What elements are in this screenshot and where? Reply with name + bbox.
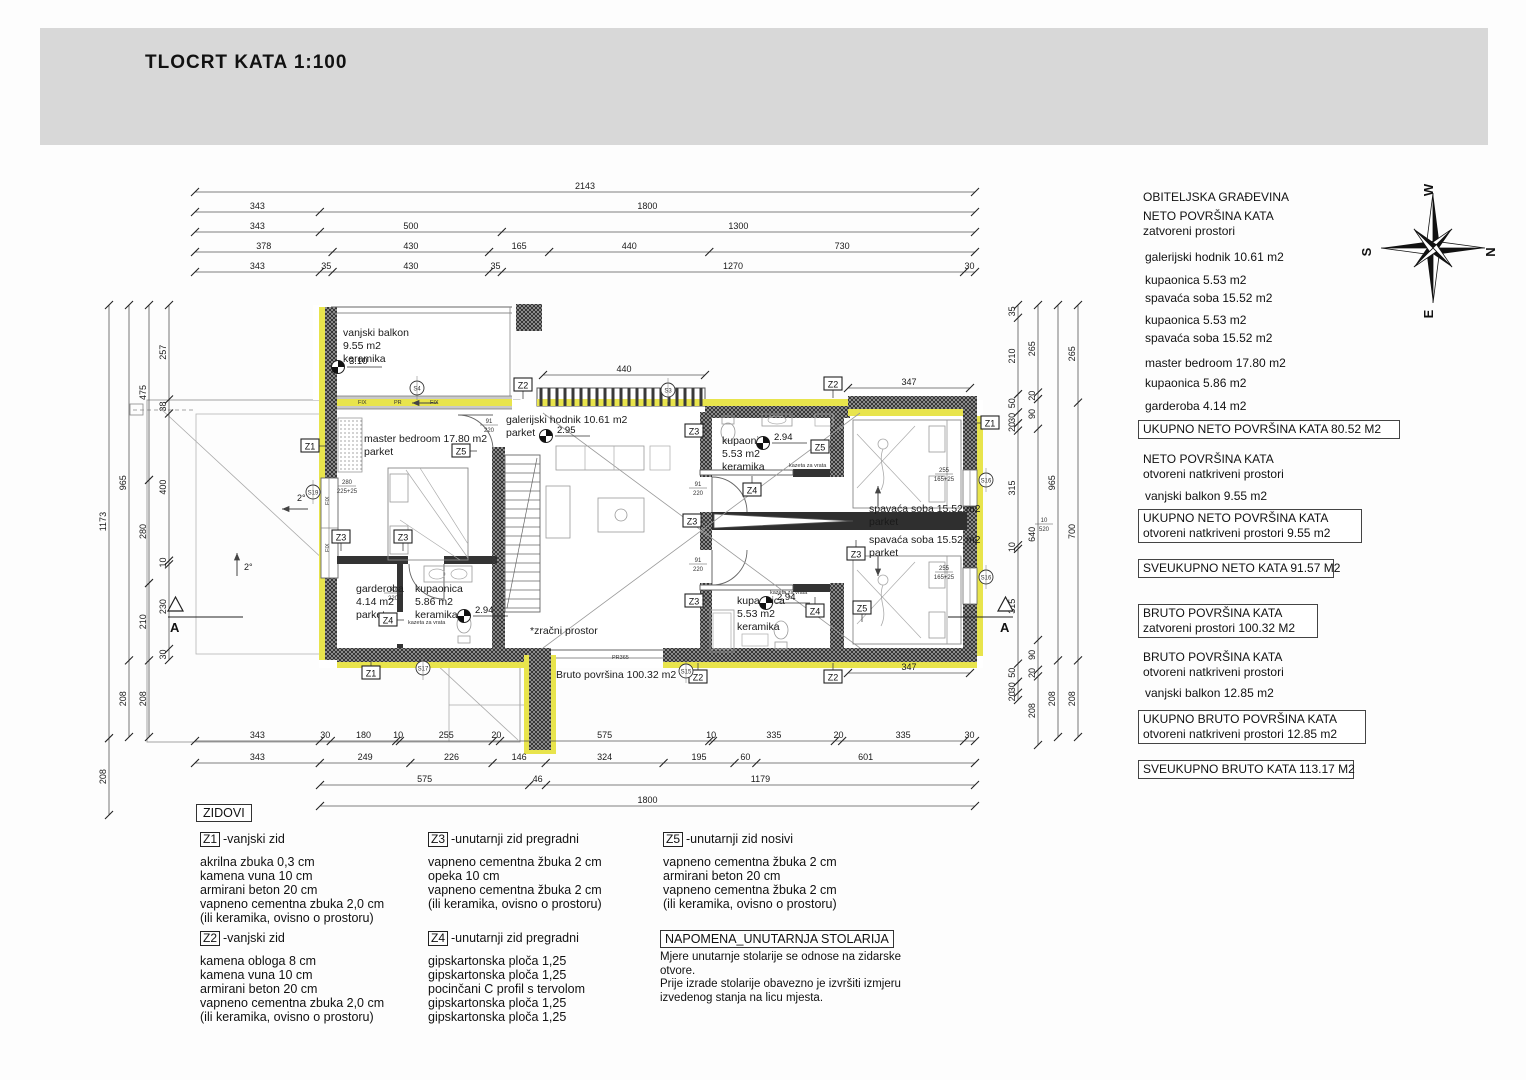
svg-text:60: 60 [740, 752, 750, 762]
bruto-open-heading: BRUTO POVRŠINA KATA [1143, 650, 1282, 664]
svg-text:255: 255 [939, 566, 950, 572]
svg-text:Z5: Z5 [857, 604, 868, 614]
legend-layer: kamena obloga 8 cm [200, 954, 384, 968]
svg-text:Bruto površina 100.32 m2: Bruto površina 100.32 m2 [556, 669, 676, 681]
svg-text:601: 601 [858, 752, 873, 762]
svg-text:90: 90 [1027, 409, 1037, 419]
svg-text:265: 265 [1027, 341, 1037, 356]
neto-open-total-line2: otvoreni natkriveni prostori 9.55 m2 [1143, 526, 1357, 541]
svg-text:parket: parket [506, 427, 535, 439]
svg-text:30: 30 [158, 649, 168, 659]
svg-text:2.94: 2.94 [777, 592, 796, 603]
napomena-text: Mjere unutarnje stolarije se odnose na z… [660, 951, 890, 1005]
svg-text:208: 208 [1047, 691, 1057, 706]
svg-text:30: 30 [965, 730, 975, 740]
svg-text:1173: 1173 [98, 512, 108, 531]
wall-code-box: Z4 [428, 931, 448, 946]
legend-layer: armirani beton 20 cm [200, 982, 384, 996]
napomena-title: NAPOMENA_UNUTARNJA STOLARIJA [660, 930, 894, 948]
svg-text:20: 20 [491, 730, 501, 740]
neto-subheading: zatvoreni prostori [1143, 224, 1235, 238]
svg-text:S3: S3 [664, 389, 672, 395]
svg-text:165+25: 165+25 [934, 477, 955, 483]
legend-layer: vapneno cementna žbuka 2 cm [428, 883, 602, 897]
legend-layer: kamena vuna 10 cm [200, 869, 384, 883]
svg-text:640: 640 [1027, 527, 1037, 542]
svg-text:46: 46 [533, 774, 543, 784]
svg-text:kazeta za vrata: kazeta za vrata [789, 463, 827, 469]
svg-text:vanjski balkon: vanjski balkon [343, 327, 409, 339]
legend-layer: vapneno cementna žbuka 2 cm [663, 883, 837, 897]
svg-text:220: 220 [484, 428, 495, 434]
legend-title-box: ZIDOVI [196, 804, 252, 822]
bruto-open-subheading: otvoreni natkriveni prostori [1143, 665, 1284, 679]
svg-text:Z2: Z2 [693, 673, 704, 683]
svg-text:520: 520 [1039, 527, 1050, 533]
svg-text:230: 230 [158, 599, 168, 614]
svg-text:91: 91 [695, 558, 702, 564]
svg-text:80: 80 [390, 587, 397, 593]
svg-text:A: A [1000, 620, 1010, 635]
svg-text:S15: S15 [681, 670, 692, 676]
legend-entry-z2: Z2-vanjski zidkamena obloga 8 cmkamena v… [200, 931, 384, 1024]
svg-text:146: 146 [512, 752, 527, 762]
bruto-open-total-line2: otvoreni natkriveni prostori 12.85 m2 [1143, 727, 1361, 742]
svg-text:90: 90 [1027, 650, 1037, 660]
svg-text:965: 965 [1047, 475, 1057, 490]
legend-layer: pocinčani C profil s tervolom [428, 982, 585, 996]
svg-text:parket: parket [869, 516, 898, 528]
svg-text:165+25: 165+25 [934, 575, 955, 581]
svg-text:Z1: Z1 [305, 442, 316, 452]
svg-text:S19: S19 [308, 491, 319, 497]
legend-layer: (ili keramika, ovisno o prostoru) [200, 1010, 384, 1024]
svg-text:spavaća soba 15.52 m2: spavaća soba 15.52 m2 [869, 534, 981, 546]
svg-text:Z3: Z3 [851, 550, 862, 560]
svg-text:20: 20 [1027, 391, 1037, 401]
svg-text:FIX: FIX [430, 400, 439, 406]
svg-text:249: 249 [358, 752, 373, 762]
svg-text:2°: 2° [297, 493, 306, 503]
svg-text:165: 165 [512, 241, 527, 251]
svg-text:257: 257 [158, 345, 168, 360]
svg-text:180: 180 [356, 730, 371, 740]
legend-entry-z4: Z4-unutarnji zid pregradnigipskartonska … [428, 931, 585, 1024]
svg-text:343: 343 [250, 201, 265, 211]
svg-text:Z4: Z4 [383, 616, 394, 626]
neto-open-heading: NETO POVRŠINA KATA [1143, 452, 1274, 466]
svg-text:10: 10 [1007, 542, 1017, 552]
wall-code-box: Z2 [200, 931, 220, 946]
svg-text:kupaonica: kupaonica [415, 583, 463, 595]
svg-text:265: 265 [1067, 346, 1077, 361]
svg-text:343: 343 [250, 752, 265, 762]
svg-text:335: 335 [896, 730, 911, 740]
legend-title: ZIDOVI [196, 804, 252, 822]
svg-text:1800: 1800 [637, 201, 657, 211]
svg-text:5.86 m2: 5.86 m2 [415, 596, 453, 608]
svg-text:Z3: Z3 [689, 597, 700, 607]
svg-text:1800: 1800 [637, 795, 657, 805]
neto-total-box: UKUPNO NETO POVRŠINA KATA 80.52 M2 [1138, 420, 1400, 439]
room-area-item: spavaća soba 15.52 m2 [1145, 291, 1272, 305]
wall-code-box: Z1 [200, 832, 220, 847]
svg-text:1270: 1270 [723, 261, 743, 271]
svg-text:335: 335 [766, 730, 781, 740]
drawing-sheet: TLOCRT KATA 1:100 2143343180034350013003… [0, 0, 1526, 1080]
svg-text:Z3: Z3 [398, 533, 409, 543]
bruto-open-total-box: UKUPNO BRUTO POVRŠINA KATA otvoreni natk… [1138, 710, 1366, 744]
svg-text:208: 208 [98, 769, 108, 784]
svg-text:575: 575 [417, 774, 432, 784]
room-area-item: kupaonica 5.53 m2 [1145, 273, 1246, 287]
svg-text:2.94: 2.94 [475, 605, 494, 616]
svg-text:378: 378 [256, 241, 271, 251]
svg-text:220: 220 [388, 596, 399, 602]
svg-text:PR365: PR365 [612, 655, 629, 661]
svg-text:Z4: Z4 [747, 486, 758, 496]
svg-text:91: 91 [695, 482, 702, 488]
napomena-line: otvore. [660, 965, 890, 979]
napomena: NAPOMENA_UNUTARNJA STOLARIJA Mjere unuta… [660, 930, 890, 1005]
neto-open-subheading: otvoreni natkriveni prostori [1143, 467, 1284, 481]
svg-text:20: 20 [1007, 422, 1017, 432]
svg-text:keramika: keramika [737, 621, 780, 633]
svg-text:W: W [1421, 183, 1436, 196]
svg-text:30: 30 [1007, 682, 1017, 692]
svg-text:Z2: Z2 [828, 673, 839, 683]
bruto-box: BRUTO POVRŠINA KATA zatvoreni prostori 1… [1138, 604, 1318, 638]
svg-text:430: 430 [403, 241, 418, 251]
svg-text:20: 20 [834, 730, 844, 740]
legend-entry-z5: Z5-unutarnji zid nosivivapneno cementna … [663, 832, 837, 911]
svg-text:*zračni prostor: *zračni prostor [530, 625, 598, 637]
bruto-open-item: vanjski balkon 12.85 m2 [1145, 686, 1274, 700]
building-title: OBITELJSKA GRAĐEVINA [1143, 190, 1289, 204]
svg-text:255: 255 [439, 730, 454, 740]
svg-text:208: 208 [1067, 691, 1077, 706]
room-area-item: kupaonica 5.86 m2 [1145, 376, 1246, 390]
svg-text:700: 700 [1067, 524, 1077, 539]
svg-text:38: 38 [158, 402, 168, 412]
svg-text:S16: S16 [981, 576, 992, 582]
svg-text:S17: S17 [418, 667, 429, 673]
room-area-item: galerijski hodnik 10.61 m2 [1145, 250, 1284, 264]
svg-text:280: 280 [342, 480, 353, 486]
napomena-line: Prije izrade stolarije obavezno je izvrš… [660, 978, 890, 992]
svg-text:S16: S16 [981, 479, 992, 485]
svg-text:225+25: 225+25 [337, 489, 358, 495]
svg-text:347: 347 [901, 377, 916, 387]
svg-text:50: 50 [1007, 398, 1017, 408]
svg-text:10: 10 [706, 730, 716, 740]
svg-text:2143: 2143 [575, 181, 595, 191]
svg-text:keramika: keramika [722, 461, 765, 473]
svg-text:FIX: FIX [325, 543, 331, 552]
svg-text:430: 430 [403, 261, 418, 271]
legend-layer: akrilna zbuka 0,3 cm [200, 855, 384, 869]
svg-text:parket: parket [869, 547, 898, 559]
svg-text:Z2: Z2 [828, 380, 839, 390]
svg-text:440: 440 [622, 241, 637, 251]
svg-text:10: 10 [1041, 518, 1048, 524]
legend-layer: vapneno cementna žbuka 2 cm [428, 855, 602, 869]
neto-open-total-line1: UKUPNO NETO POVRŠINA KATA [1143, 511, 1357, 526]
neto-open-total-box: UKUPNO NETO POVRŠINA KATA otvoreni natkr… [1138, 509, 1362, 543]
svg-text:195: 195 [692, 752, 707, 762]
legend-layer: vapneno cementna zbuka 2,0 cm [200, 897, 384, 911]
svg-text:Z3: Z3 [687, 517, 698, 527]
svg-text:kazeta za vrata: kazeta za vrata [408, 620, 446, 626]
bruto-open-total-line1: UKUPNO BRUTO POVRŠINA KATA [1143, 712, 1361, 727]
svg-text:1179: 1179 [751, 774, 770, 784]
svg-text:3.10: 3.10 [349, 356, 368, 367]
legend-layer: armirani beton 20 cm [200, 883, 384, 897]
room-area-item: spavaća soba 15.52 m2 [1145, 331, 1272, 345]
svg-text:965: 965 [118, 475, 128, 490]
legend-entry-z1: Z1-vanjski zidakrilna zbuka 0,3 cmkamena… [200, 832, 384, 925]
svg-text:2.95: 2.95 [557, 425, 576, 436]
svg-text:400: 400 [158, 480, 168, 495]
svg-text:9.55 m2: 9.55 m2 [343, 340, 381, 352]
svg-text:343: 343 [250, 261, 265, 271]
svg-text:210: 210 [138, 614, 148, 629]
svg-text:10: 10 [158, 558, 168, 568]
legend-layer: opeka 10 cm [428, 869, 602, 883]
legend-layer: kamena vuna 10 cm [200, 968, 384, 982]
svg-text:30: 30 [1007, 413, 1017, 423]
svg-text:spavaća soba 15.52 m2: spavaća soba 15.52 m2 [869, 503, 981, 515]
svg-text:324: 324 [597, 752, 612, 762]
svg-text:35: 35 [321, 261, 331, 271]
svg-text:226: 226 [444, 752, 459, 762]
svg-text:255: 255 [939, 468, 950, 474]
legend-layer: (ili keramika, ovisno o prostoru) [663, 897, 837, 911]
legend-layer: (ili keramika, ovisno o prostoru) [428, 897, 602, 911]
legend-layer: gipskartonska ploča 1,25 [428, 954, 585, 968]
svg-text:Z4: Z4 [810, 607, 821, 617]
legend-layer: vapneno cementna zbuka 2,0 cm [200, 996, 384, 1010]
svg-text:PR: PR [394, 400, 402, 406]
svg-text:50: 50 [1007, 668, 1017, 678]
svg-text:280: 280 [138, 524, 148, 539]
svg-text:440: 440 [616, 364, 631, 374]
svg-text:Z1: Z1 [366, 669, 377, 679]
svg-text:parket: parket [364, 446, 393, 458]
svg-text:Z3: Z3 [336, 533, 347, 543]
svg-text:10: 10 [393, 730, 403, 740]
napomena-line: izvedenog stanja na licu mjesta. [660, 992, 890, 1006]
legend-layer: gipskartonska ploča 1,25 [428, 996, 585, 1010]
svg-text:Z1: Z1 [985, 419, 996, 429]
sveukupno-bruto-box: SVEUKUPNO BRUTO KATA 113.17 M2 [1138, 760, 1354, 779]
sveukupno-neto-box: SVEUKUPNO NETO KATA 91.57 M2 [1138, 559, 1334, 578]
svg-text:S: S [1359, 247, 1374, 256]
svg-text:20: 20 [1007, 691, 1017, 701]
svg-text:Z5: Z5 [456, 447, 467, 457]
svg-text:475: 475 [138, 385, 148, 400]
wall-code-box: Z3 [428, 832, 448, 847]
svg-text:FIX: FIX [325, 496, 331, 505]
svg-text:35: 35 [1007, 306, 1017, 316]
legend-entry-z3: Z3-unutarnji zid pregradnivapneno cement… [428, 832, 602, 911]
svg-text:343: 343 [250, 730, 265, 740]
svg-text:Z3: Z3 [689, 427, 700, 437]
svg-text:Z2: Z2 [518, 381, 529, 391]
svg-text:575: 575 [597, 730, 612, 740]
svg-text:91: 91 [486, 419, 493, 425]
svg-text:35: 35 [490, 261, 500, 271]
svg-text:208: 208 [138, 691, 148, 706]
bruto-line1: BRUTO POVRŠINA KATA [1143, 606, 1313, 621]
svg-text:Z5: Z5 [815, 443, 826, 453]
svg-text:210: 210 [1007, 348, 1017, 363]
svg-text:2.94: 2.94 [774, 432, 793, 443]
svg-text:220: 220 [693, 567, 704, 573]
svg-text:5.53 m2: 5.53 m2 [722, 448, 760, 460]
svg-text:30: 30 [965, 261, 975, 271]
svg-text:500: 500 [403, 221, 418, 231]
svg-text:S4: S4 [413, 387, 421, 393]
svg-text:208: 208 [1027, 703, 1037, 718]
svg-text:343: 343 [250, 221, 265, 231]
legend-layer: gipskartonska ploča 1,25 [428, 968, 585, 982]
svg-text:A: A [170, 620, 180, 635]
svg-text:N: N [1483, 247, 1498, 256]
svg-text:master bedroom 17.80 m2: master bedroom 17.80 m2 [364, 433, 487, 445]
neto-open-item: vanjski balkon 9.55 m2 [1145, 489, 1267, 503]
svg-text:208: 208 [118, 691, 128, 706]
napomena-line: Mjere unutarnje stolarije se odnose na z… [660, 951, 890, 965]
legend-layer: (ili keramika, ovisno o prostoru) [200, 911, 384, 925]
svg-text:1300: 1300 [728, 221, 748, 231]
svg-text:5.53 m2: 5.53 m2 [737, 608, 775, 620]
svg-text:315: 315 [1007, 480, 1017, 495]
svg-text:FIX: FIX [358, 400, 367, 406]
bruto-line2: zatvoreni prostori 100.32 M2 [1143, 621, 1313, 636]
svg-text:730: 730 [835, 241, 850, 251]
room-area-item: garderoba 4.14 m2 [1145, 399, 1246, 413]
svg-text:20: 20 [1027, 668, 1037, 678]
svg-text:347: 347 [901, 662, 916, 672]
neto-heading: NETO POVRŠINA KATA [1143, 209, 1274, 223]
svg-text:E: E [1421, 309, 1436, 318]
svg-text:220: 220 [693, 491, 704, 497]
svg-text:30: 30 [320, 730, 330, 740]
svg-text:2°: 2° [244, 562, 253, 572]
wall-code-box: Z5 [663, 832, 683, 847]
legend-layer: gipskartonska ploča 1,25 [428, 1010, 585, 1024]
legend-layer: vapneno cementna žbuka 2 cm [663, 855, 837, 869]
room-area-item: kupaonica 5.53 m2 [1145, 313, 1246, 327]
room-area-item: master bedroom 17.80 m2 [1145, 356, 1286, 370]
legend-layer: armirani beton 20 cm [663, 869, 837, 883]
